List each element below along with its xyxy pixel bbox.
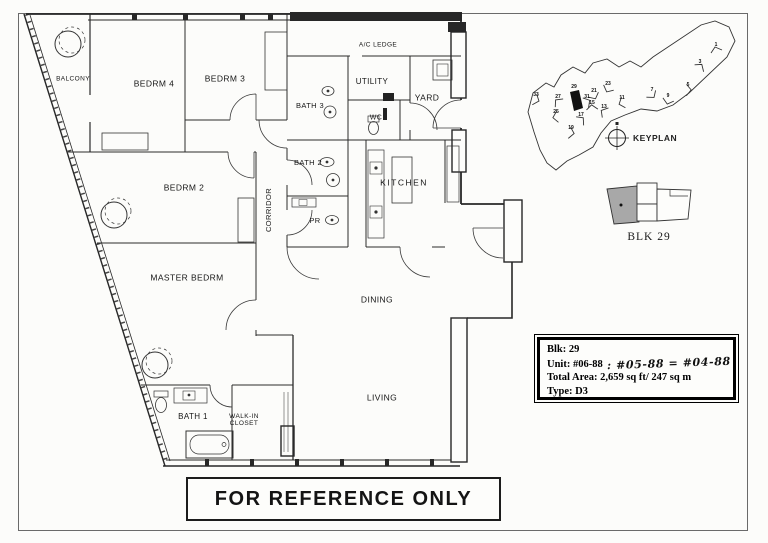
column-balcony [55, 27, 85, 57]
bedrm2-wardrobe [238, 198, 254, 242]
info-unit-number: Unit: #06-88 [547, 359, 603, 370]
window-mullions [132, 14, 434, 466]
wc-fixtures [368, 108, 387, 135]
keyplan-block-number-33: 33 [533, 92, 539, 98]
bath3-fixtures [322, 87, 336, 119]
keyplan-block-number-3: 3 [699, 59, 702, 65]
kitchen-counter-left [368, 150, 384, 238]
keyplan-block-29-highlight [570, 90, 583, 111]
bath2-fixtures [320, 158, 340, 187]
column-bedrm2 [101, 198, 131, 228]
kitchen-island [392, 157, 412, 203]
kitchen-door [400, 247, 430, 277]
column-master [142, 348, 172, 378]
keyplan-block-number-29: 29 [571, 84, 577, 90]
keyplan-block-number-31: 31 [584, 94, 590, 100]
info-unit: Unit: #06-88: #05-88 = #04-88 [547, 357, 726, 372]
floorplan-scan-page: 13579111315171921232527293133 BALCONYBED… [0, 0, 768, 543]
yard-fixture [433, 60, 452, 80]
diagonal-wall-hatch [27, 14, 167, 464]
info-total-area: Total Area: 2,659 sq ft/ 247 sq m [547, 371, 726, 385]
bath1-door [210, 385, 232, 407]
floorplan-svg: 13579111315171921232527293133 [0, 0, 768, 543]
blk29-label: BLK 29 [627, 231, 670, 243]
keyplan-block-number-27: 27 [555, 94, 561, 100]
bathtub [186, 431, 233, 458]
bath1-fixtures [154, 388, 207, 413]
reference-only-text: FOR REFERENCE ONLY [215, 488, 472, 511]
interior-walls [68, 14, 461, 460]
utility-db-box [383, 93, 394, 101]
info-blk: Blk: 29 [547, 343, 726, 357]
ac-ledge-wall [290, 12, 462, 21]
keyplan-block-number-11: 11 [619, 95, 625, 101]
diagonal-wall-outer [24, 14, 165, 466]
bedrm3-wardrobe [265, 32, 287, 90]
keyplan-blocks: 13579111315171921232527293133 [530, 42, 722, 140]
corner-pier [448, 22, 466, 32]
bedrm3-door [230, 94, 256, 120]
foyer-door [287, 247, 319, 279]
yard-door [433, 100, 461, 128]
info-type: Type: D3 [547, 385, 726, 399]
unit-info-box: Blk: 29 Unit: #06-88: #05-88 = #04-88 To… [537, 337, 736, 400]
keyplan-block-number-25: 25 [553, 109, 559, 115]
bath2-door [287, 160, 312, 185]
keyplan-block-number-21: 21 [591, 88, 597, 94]
master-bedrm-door [226, 300, 256, 330]
keyplan-block-number-19: 19 [568, 125, 574, 131]
keyplan-block-number-13: 13 [601, 104, 607, 110]
living-right-wall [451, 318, 467, 462]
keyplan-block-number-15: 15 [589, 100, 595, 106]
pr-fixtures [292, 198, 339, 225]
entrance-pier [504, 200, 522, 262]
keyplan: 13579111315171921232527293133 [528, 21, 735, 170]
bedrm2-door [228, 152, 254, 178]
hallway-door [259, 120, 287, 148]
keyplan-block-number-1: 1 [715, 42, 718, 48]
keyplan-block-number-7: 7 [651, 87, 654, 93]
keyplan-block-number-23: 23 [605, 81, 611, 87]
keyplan-compass-icon [605, 122, 629, 150]
bedrm4-wardrobe [102, 133, 148, 150]
info-unit-handwritten-note: : #05-88 = #04-88 [607, 354, 731, 373]
keyplan-title: KEYPLAN [633, 133, 677, 143]
diagonal-wall-inner [30, 15, 170, 461]
keyplan-block-number-17: 17 [578, 112, 584, 118]
reference-only-box: FOR REFERENCE ONLY [186, 477, 501, 521]
blk29-unit-highlight [607, 186, 639, 224]
blk29-diagram [607, 183, 691, 224]
keyplan-block-number-5: 5 [687, 82, 690, 88]
pr-door [287, 210, 312, 235]
entrance-door [473, 228, 503, 258]
keyplan-block-number-9: 9 [667, 93, 670, 99]
